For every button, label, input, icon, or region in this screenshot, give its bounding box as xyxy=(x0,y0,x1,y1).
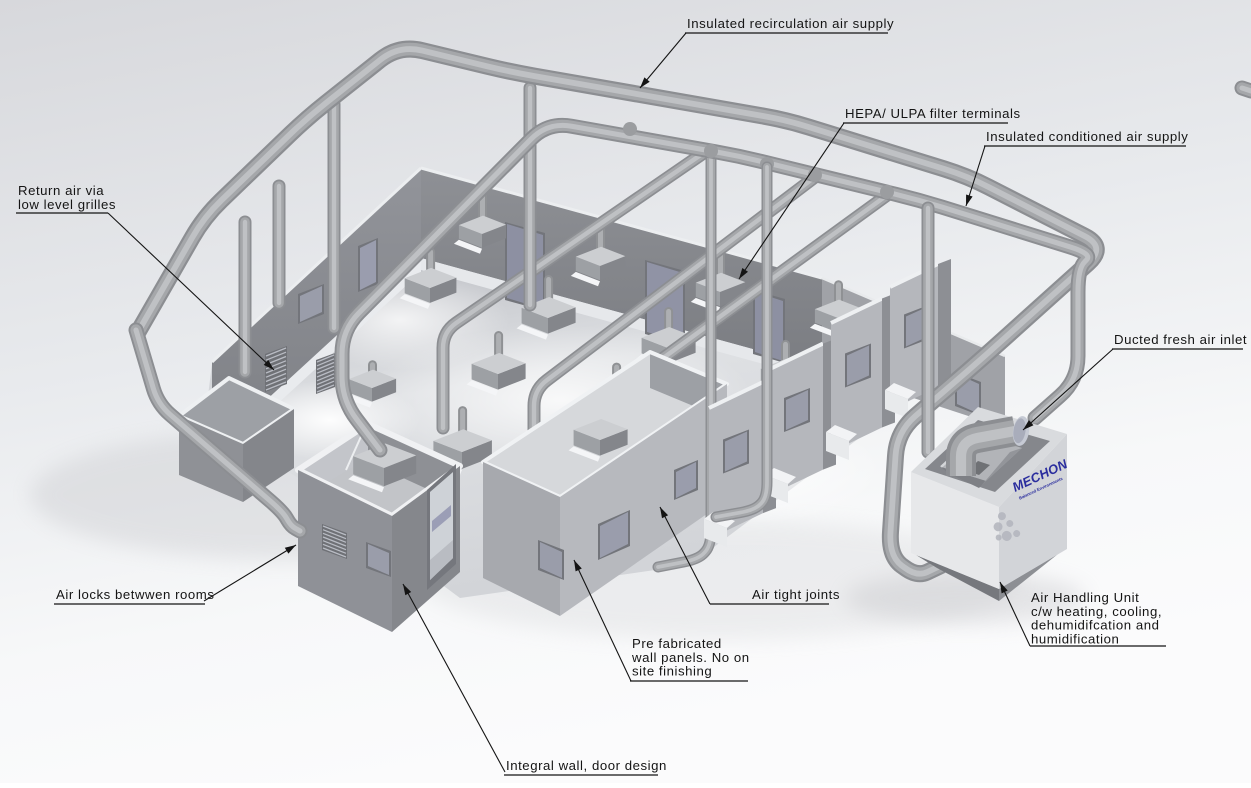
svg-text:dehumidifcation and: dehumidifcation and xyxy=(1031,618,1160,633)
svg-text:Ducted fresh air inlet: Ducted fresh air inlet xyxy=(1114,332,1247,347)
svg-text:Pre fabricated: Pre fabricated xyxy=(632,636,722,651)
svg-text:wall panels. No on: wall panels. No on xyxy=(631,650,750,665)
svg-text:HEPA/ ULPA filter terminals: HEPA/ ULPA filter terminals xyxy=(845,106,1021,121)
svg-text:Air Handling Unit: Air Handling Unit xyxy=(1031,590,1139,605)
svg-text:Insulated recirculation air su: Insulated recirculation air supply xyxy=(687,16,894,31)
svg-text:Integral wall, door design: Integral wall, door design xyxy=(506,758,667,773)
svg-text:c/w heating, cooling,: c/w heating, cooling, xyxy=(1031,604,1162,619)
svg-text:low level grilles: low level grilles xyxy=(18,197,116,212)
svg-text:site finishing: site finishing xyxy=(632,664,712,679)
svg-text:Return air via: Return air via xyxy=(18,183,104,198)
svg-text:humidification: humidification xyxy=(1031,631,1119,646)
svg-text:Air locks betwwen rooms: Air locks betwwen rooms xyxy=(56,587,215,602)
svg-text:Insulated conditioned air supp: Insulated conditioned air supply xyxy=(986,129,1188,144)
svg-text:Air tight joints: Air tight joints xyxy=(752,587,840,602)
